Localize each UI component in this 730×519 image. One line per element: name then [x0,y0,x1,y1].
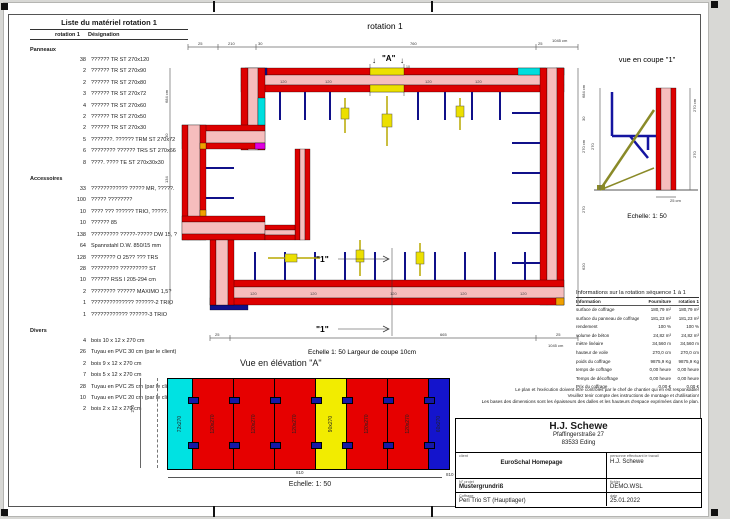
row-label: hauteur de voile [576,349,639,358]
elevation-scale: Echelle: 1: 50 [245,481,375,488]
item-label: bois 9 x 12 x 270 cm [91,359,141,370]
row-label: temps de coffrage [576,366,639,375]
walkway-bracket [612,92,656,158]
item-qty: 2 [30,404,86,415]
panel-clamp [311,442,322,449]
item-label: ???? ??? ?????? TRIO, ?????. [91,207,168,218]
row-label: mètre linéaire [576,340,639,349]
arrow-down-icon: ↓ [372,56,376,65]
panel-size-label: 120x270 [210,414,216,433]
formwork-panel: 120x270 [274,378,316,470]
item-qty: 138 [30,230,86,241]
marker-1-label: "1" [316,254,329,264]
row-label: Temps de décoffrage [576,375,639,384]
item-label: ?????? TR ST 270x80 [91,78,146,89]
plan-scale-note: Echelle 1: 50 Largeur de coupe 10cm [308,349,416,356]
item-label: ?????? 85 [91,218,117,229]
push-pull-brace [597,110,654,190]
date-cell: date 25.01.2022 [607,493,701,506]
elevation-height-label: 270 [130,405,135,413]
top-dimension-labels: 25 210 30 760 25 1045 cm [198,38,568,46]
top-dimension-line [188,44,578,50]
row-label: poids du coffrage [576,358,639,367]
arrow-down-icon: ↓ [400,56,404,65]
panel-size-label: 120 [520,291,527,296]
panel-clamp [342,397,353,404]
panel-size-label: 120 [460,291,467,296]
item-qty: 4 [30,101,86,112]
row-fourniture: 270,0 cm [639,349,671,358]
item-label: ????. ???? TE ST 270x30x30 [91,158,164,169]
panel-size-label: 120x270 [405,414,411,433]
item-label: Tuyau en PVC 20 cm (par le client) [91,393,176,404]
item-qty: 26 [30,347,86,358]
panel-clamp [229,397,240,404]
elevation-height-dim-line [140,378,141,468]
coupe-title: vue en coupe "1" [619,55,676,64]
item-qty: 1 [30,310,86,321]
company-street: Pfaffingerstraße 27 [456,432,701,440]
formwork-panel: 90x270 [315,378,347,470]
dim-label: 760 [410,41,417,46]
company-name: H.J. Schewe [456,419,701,432]
item-label: ?????? TR ST 270x50 [91,112,146,123]
dim-label: 25 cm [670,198,682,203]
date-value: 25.01.2022 [610,498,640,504]
dim-label: 25 [215,332,220,337]
panel-clamp [383,442,394,449]
coupe-dimension-lines [600,88,690,190]
item-qty: 10 [30,393,86,404]
panel-clamp [229,442,240,449]
panel-clamp [342,442,353,449]
formwork-walls [182,68,564,310]
item-qty: 1 [30,298,86,309]
panel-size-label: 120 [390,291,397,296]
item-label: bois 5 x 12 x 270 cm [91,370,141,381]
item-label: ????? ???????? [91,195,132,206]
wall-panel-labels: 120 120 120 120 120 120 120 120 120 [250,79,527,296]
corner-piece [200,210,206,216]
item-qty: 3 [30,89,86,100]
row-label: rendement [576,323,639,332]
elevation-total-dim: 810 [296,470,304,475]
panel-size-label: 120x270 [364,414,370,433]
item-qty: 2 [30,66,86,77]
item-qty: 6 [30,146,86,157]
yellow-panel [370,85,404,92]
dim-total-label: 1045 cm [548,343,564,348]
table-row: temps de coffrage0,00 heure0,00 heure [576,366,699,375]
fold-mark [213,506,215,517]
item-qty: 64 [30,241,86,252]
info-header: Information Fourniture rotation 1 [576,298,699,306]
panel-clamp [383,397,394,404]
client-row: client EuroSchal Homepage personne effec… [456,453,701,479]
col-rotation-1: rotation 1 [671,299,699,304]
panel-size-label: 120x270 [292,414,298,433]
client-label: client [459,454,604,458]
item-qty: 10 [30,207,86,218]
item-qty: 28 [30,264,86,275]
row-label: volume de béton [576,332,639,341]
fold-mark [213,1,215,12]
file-cell: fichier DEMO.WSL [607,479,701,492]
dim-label: 30 [164,133,169,138]
panel-size-label: 90x270 [328,416,334,432]
floor-plan-view: rotation 1 25 210 30 760 25 1045 cm ↓ "A… [160,18,590,363]
formwork-panel: 120x270 [233,378,275,470]
panel-clamp [424,442,435,449]
panel-size-label: 120 [250,291,257,296]
panel-clamp [188,442,199,449]
table-row: surface de coffrage180,79 m²180,79 m² [576,306,699,315]
formwork-value: Peri Trio ST (Hauptlager) [459,498,526,504]
panel-size-label: 72x270 [177,416,183,432]
table-row: volume de béton24,82 m³24,82 m³ [576,332,699,341]
company-block: H.J. Schewe Pfaffingerstraße 27 83533 Ed… [456,419,701,453]
info-title: Informations sur la rotation séquence 1 … [576,290,699,298]
formwork-panel: 60x270 [428,378,450,470]
row-rotation: 0,00 heure [671,366,699,375]
item-label: ?????? TR ST 270x30 [91,123,146,134]
stop-end [210,305,248,310]
corner-piece [200,143,206,149]
marker-1-label: "1" [316,324,329,334]
fold-mark [431,506,433,517]
item-label: Spannstahl D.W. 850/15 mm [91,241,161,252]
formwork-panel: 120x270 [346,378,388,470]
table-row: rendement100 %100 % [576,323,699,332]
dim-label: 210 [228,41,235,46]
item-qty: 10 [30,218,86,229]
item-qty: 5 [30,135,86,146]
item-qty: 128 [30,253,86,264]
item-label: ?????? TR ST 270x120 [91,55,149,66]
dim-label: 270 cm [692,98,697,112]
row-label: surface du panneau de coffrage [576,315,639,324]
project-value: Mustergrundriß [459,484,503,490]
rotation-info-table: Informations sur la rotation séquence 1 … [576,290,699,392]
dim-label: 25 [198,41,203,46]
panel-size-label: 120 [325,79,332,84]
item-label: bois 10 x 12 x 270 cm [91,336,145,347]
item-qty: 33 [30,184,86,195]
item-qty: 2 [30,287,86,298]
info-rows: surface de coffrage180,79 m²180,79 m²sur… [576,306,699,392]
project-row: N° projet Mustergrundriß fichier DEMO.WS… [456,479,701,493]
worker-cell: personne effectuant le travail H.J. Sche… [607,453,701,478]
item-qty: 2 [30,78,86,89]
row-fourniture: 100 % [639,323,671,332]
yellow-panel [370,68,404,75]
item-label: ???????? O 25?? ??? TRS [91,253,158,264]
list-item: 10Tuyau en PVC 20 cm (par le client) [30,393,188,404]
item-qty: 7 [30,370,86,381]
list-item: 2bois 2 x 12 x 270 cm [30,404,188,415]
cyan-panel [258,98,265,125]
item-qty: 2 [30,112,86,123]
item-label: Tuyau en PVC 25 cm (par le client) [91,382,176,393]
elevation-panel-strip: 72x270 120x270 120x270 120x270 90x270 12… [168,378,450,468]
item-qty: 8 [30,158,86,169]
row-label: surface de coffrage [576,306,639,315]
marker-a-label: "A" [382,54,396,63]
row-rotation: 34,560 m [671,340,699,349]
plan-notes: Le plan et l'exécution doivent être cont… [445,387,699,405]
row-fourniture: 34,560 m [639,340,671,349]
panel-size-label: 120x270 [251,414,257,433]
note-line: Les bases des dimensions sont les épaiss… [445,399,699,405]
dim-label: 25 [556,332,561,337]
row-rotation: 9875,9 Kg [671,358,699,367]
item-qty: 2 [30,123,86,134]
list-item: 7bois 5 x 12 x 270 cm [30,370,188,381]
dim-label: 270 [590,143,595,150]
row-rotation: 180,79 m² [671,306,699,315]
company-city: 83533 Eding [456,440,701,448]
row-fourniture: 181,23 m² [639,315,671,324]
coupe-wall [656,88,676,190]
item-label: ?????? TR ST 270x72 [91,89,146,100]
row-fourniture: 9875,9 Kg [639,358,671,367]
row-fourniture: 0,00 heure [639,366,671,375]
panel-size-label: 120 [280,79,287,84]
bottom-dimension-labels: 25 665 25 1045 cm [215,332,564,348]
list-item: 28Tuyau en PVC 25 cm (par le client) [30,382,188,393]
item-label: ?????? TR ST 270x90 [91,66,146,77]
item-qty: 28 [30,382,86,393]
fold-mark [431,1,433,12]
formwork-row: Coffrage Peri Trio ST (Hauptlager) date … [456,493,701,506]
dim-label: 684 cm [164,89,169,103]
client-value: EuroSchal Homepage [459,460,604,466]
dim-total-label: 1045 cm [552,38,568,43]
table-row: poids du coffrage9875,9 Kg9875,9 Kg [576,358,699,367]
dim-label: 134 [164,176,169,183]
row-fourniture: 0,00 heure [639,375,671,384]
row-rotation: 100 % [671,323,699,332]
formwork-panel: 120x270 [192,378,234,470]
corner-crop-mark [1,509,8,516]
section-view: vue en coupe "1" 270 270 cm 270 25 cm Ec… [586,50,708,230]
panel-size-label: 60x270 [436,416,442,432]
row-rotation: 0,00 heure [671,375,699,384]
title-block: H.J. Schewe Pfaffingerstraße 27 83533 Ed… [455,418,702,508]
formwork-cell: Coffrage Peri Trio ST (Hauptlager) [456,493,607,506]
table-row: Temps de décoffrage0,00 heure0,00 heure [576,375,699,384]
item-qty: 38 [30,55,86,66]
item-label: ?????? RSS I 205-294 cm [91,275,156,286]
corner-crop-mark [711,509,718,516]
elevation-dashed-line [157,378,158,468]
item-label: ?????? TR ST 270x60 [91,101,146,112]
table-row: surface du panneau de coffrage181,23 m²1… [576,315,699,324]
dim-label: 620 [581,263,586,270]
worker-label: personne effectuant le travail [610,454,699,458]
dim-label: 30 [258,41,263,46]
project-cell: N° projet Mustergrundriß [456,479,607,492]
row-rotation: 24,82 m³ [671,332,699,341]
item-qty: 2 [30,359,86,370]
item-qty: 10 [30,275,86,286]
col-information: Information [576,299,639,304]
item-label: ???????????? ??????-3 TRIO [91,310,167,321]
panel-clamp [270,442,281,449]
row-rotation: 270,0 cm [671,349,699,358]
dim-label: 25 [538,41,543,46]
formwork-panel: 72x270 [167,378,193,470]
panel-clamp [188,397,199,404]
item-label: ????????? ????????? ST [91,264,156,275]
panel-clamp [424,397,435,404]
panel-clamp [270,397,281,404]
corner-crop-mark [711,1,718,8]
client-cell: client EuroSchal Homepage [456,453,607,478]
dim-label: 270 [692,151,697,158]
dim-label: 665 [440,332,447,337]
panel-clamp [311,397,322,404]
item-qty: 100 [30,195,86,206]
file-value: DEMO.WSL [610,484,643,490]
table-row: mètre linéaire34,560 m34,560 m [576,340,699,349]
corner-piece [556,298,564,305]
table-row: hauteur de voile270,0 cm270,0 cm [576,349,699,358]
magenta-piece [255,143,265,149]
formwork-panel: 120x270 [387,378,429,470]
coupe-scale: Echelle: 1: 50 [627,213,667,220]
elevation-title: Vue en élévation "A" [240,358,322,368]
panel-size-label: 120 [475,79,482,84]
worker-value: H.J. Schewe [610,459,699,465]
row-fourniture: 24,82 m³ [639,332,671,341]
elevation-base-dim-line [168,477,442,478]
corner-crop-mark [1,3,8,10]
col-fourniture: Fourniture [639,299,671,304]
plan-title: rotation 1 [367,21,403,31]
bottom-dimension-line [210,335,578,341]
panel-size-label: 120 [425,79,432,84]
prop-bodies [285,106,464,264]
panel-size-label: 120 [310,291,317,296]
row-fourniture: 180,79 m² [639,306,671,315]
col-qty: rotation 1 [30,32,80,38]
col-designation: Désignation [88,32,119,38]
row-rotation: 181,23 m² [671,315,699,324]
item-qty: 4 [30,336,86,347]
